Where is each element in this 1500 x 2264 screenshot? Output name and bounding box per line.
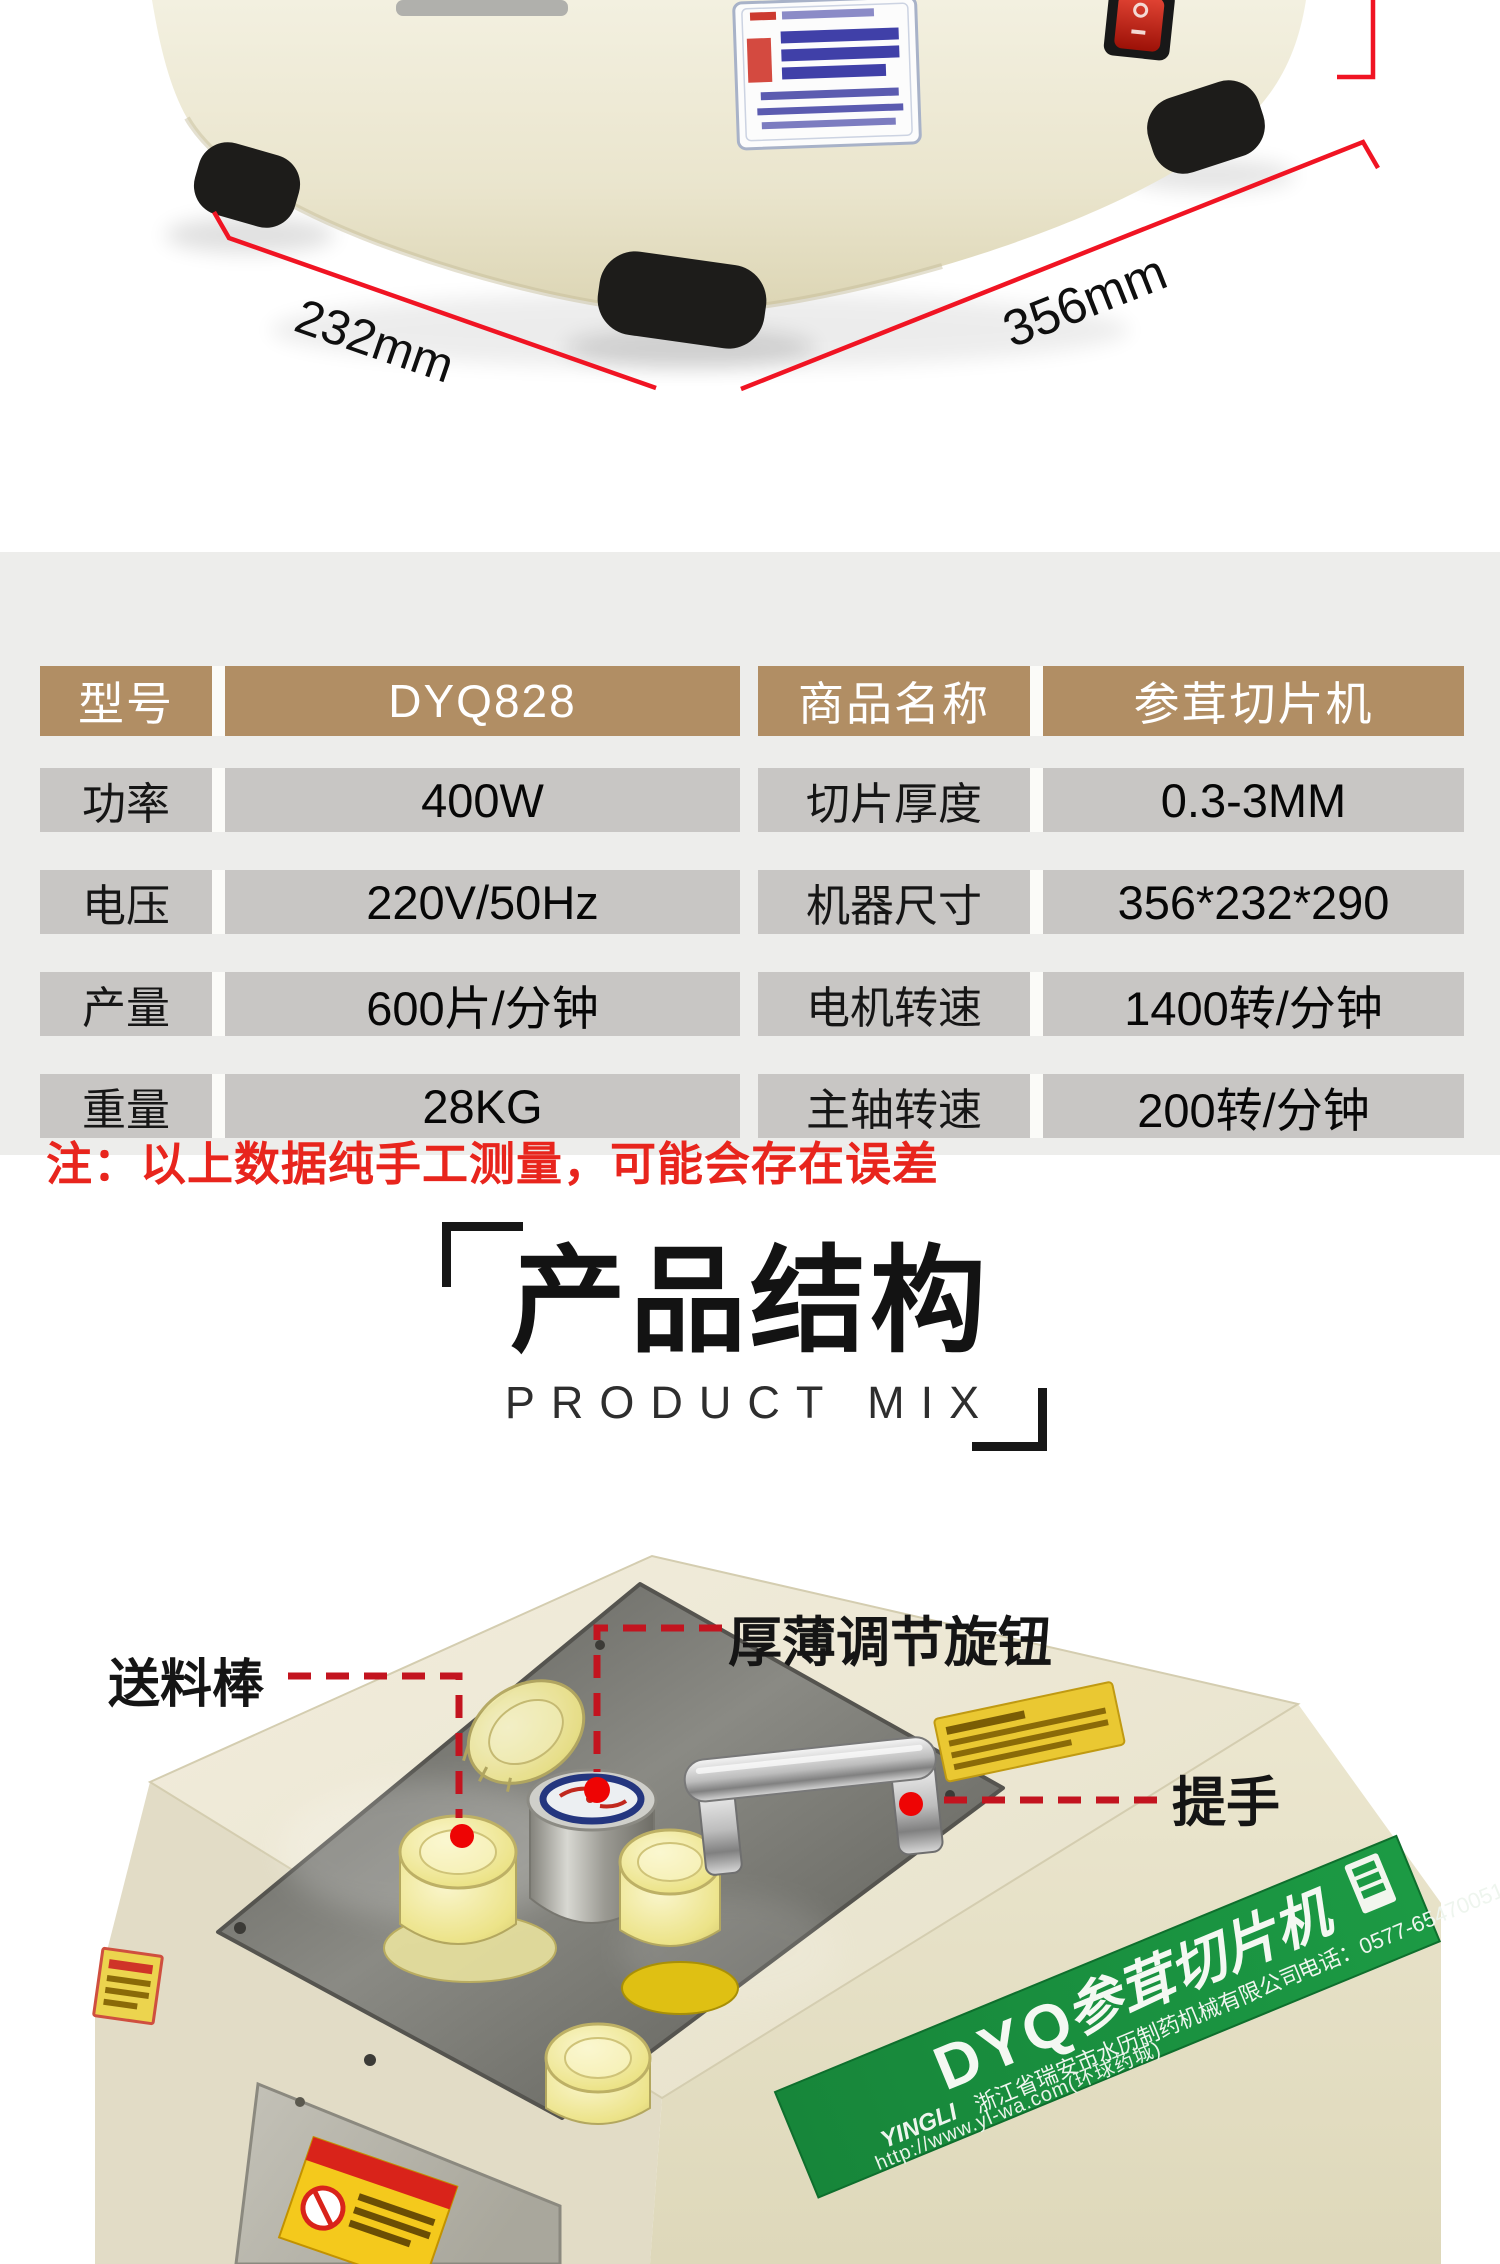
spec-row-model: 型号 DYQ828 bbox=[40, 666, 740, 736]
power-switch bbox=[1103, 0, 1176, 61]
spec-label: 型号 bbox=[40, 666, 212, 736]
spec-value: 0.3-3MM bbox=[1043, 768, 1464, 832]
plate-screw bbox=[234, 1922, 246, 1934]
spec-value: 220V/50Hz bbox=[225, 870, 740, 934]
spec-label: 重量 bbox=[40, 1074, 212, 1138]
callout-label-handle: 提手 bbox=[1172, 1758, 1280, 1837]
top-product-photo: 232mm 356mm bbox=[0, 0, 1500, 400]
spec-panel: 注：以上数据纯手工测量，可能会存在误差 bbox=[0, 552, 1500, 1155]
spec-label: 商品名称 bbox=[758, 666, 1030, 736]
spec-row-output: 产量 600片/分钟 bbox=[40, 972, 740, 1036]
spec-row-size: 机器尺寸 356*232*290 bbox=[758, 870, 1464, 934]
spec-row-power: 功率 400W bbox=[40, 768, 740, 832]
feed-rod-lower bbox=[546, 2024, 650, 2124]
spec-label: 主轴转速 bbox=[758, 1074, 1030, 1138]
spec-row-motor-speed: 电机转速 1400转/分钟 bbox=[758, 972, 1464, 1036]
spec-row-name: 商品名称 参茸切片机 bbox=[758, 666, 1464, 736]
spec-label: 机器尺寸 bbox=[758, 870, 1030, 934]
product-detail-page: 232mm 356mm 注：以上数据纯手工测量，可能会存在误差 型号 DYQ82… bbox=[0, 0, 1500, 2264]
spec-value: 28KG bbox=[225, 1074, 740, 1138]
dim-line-height bbox=[1337, 0, 1373, 77]
spec-value: 356*232*290 bbox=[1043, 870, 1464, 934]
spec-label: 电机转速 bbox=[758, 972, 1030, 1036]
spec-label: 电压 bbox=[40, 870, 212, 934]
spec-value: 参茸切片机 bbox=[1043, 666, 1464, 736]
spec-label: 产量 bbox=[40, 972, 212, 1036]
spec-label: 功率 bbox=[40, 768, 212, 832]
spec-value: DYQ828 bbox=[225, 666, 740, 736]
callout-label-feed-rod: 送料棒 bbox=[108, 1642, 264, 1717]
spec-label: 切片厚度 bbox=[758, 768, 1030, 832]
front-nameplate bbox=[734, 0, 921, 149]
spec-row-thickness: 切片厚度 0.3-3MM bbox=[758, 768, 1464, 832]
plate-screw bbox=[364, 2054, 376, 2066]
spec-value: 600片/分钟 bbox=[225, 972, 740, 1036]
panel-screw bbox=[295, 2097, 305, 2107]
small-sticker-left bbox=[94, 1948, 163, 2024]
structure-photo: DYQ 参茸切片机 YINGLI 浙江省瑞安市水历制药机械有限公司 电话：057… bbox=[0, 1460, 1500, 2264]
callout-dot-handle bbox=[899, 1792, 923, 1816]
callout-dot-thickness-knob bbox=[584, 1777, 610, 1803]
spec-value: 1400转/分钟 bbox=[1043, 972, 1464, 1036]
callout-dot-feed-rod bbox=[450, 1824, 474, 1848]
spec-value: 200转/分钟 bbox=[1043, 1074, 1464, 1138]
section-title-wrap: 产品结构 bbox=[400, 1243, 1100, 1359]
section-title: 产品结构 bbox=[510, 1236, 990, 1366]
spec-row-weight: 重量 28KG bbox=[40, 1074, 740, 1138]
callout-label-thickness-knob: 厚薄调节旋钮 bbox=[728, 1598, 1052, 1677]
spec-value: 400W bbox=[225, 768, 740, 832]
top-handle-sliver bbox=[396, 0, 568, 16]
title-bracket-right-icon bbox=[972, 1388, 1047, 1451]
spec-row-voltage: 电压 220V/50Hz bbox=[40, 870, 740, 934]
plate-screw bbox=[595, 1640, 605, 1650]
spec-row-spindle-speed: 主轴转速 200转/分钟 bbox=[758, 1074, 1464, 1138]
